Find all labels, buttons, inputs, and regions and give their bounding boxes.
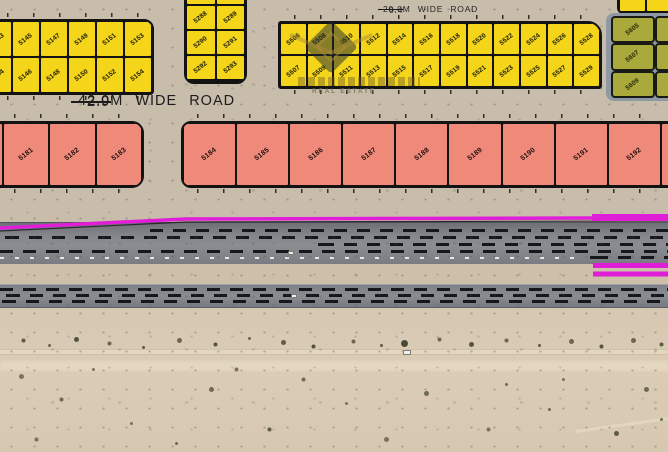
lane-dash-line [590,256,668,259]
plot-cell: 5153 [124,21,152,57]
plot-number: 5526 [552,32,568,47]
plot-number: 5144 [0,68,6,83]
plot-cell: 5524 [520,23,547,55]
plot-number: 5523 [498,64,514,79]
plot-cell: 5185 [236,123,289,186]
plot-number: 5184 [201,147,218,163]
plot-number: 5507 [285,64,301,79]
satellite-plot-map: 514351455147514951515153 514451465148515… [0,0,668,452]
magenta-boundary-thick [592,214,668,221]
plot-number: 5525 [525,64,541,79]
road-median-strip [0,264,668,284]
plot-cell [655,16,668,43]
plot-cell: 5147 [40,21,68,57]
desert-sand-area [0,308,668,452]
plot-row [619,0,668,12]
plot-cell: 5184 [183,123,236,186]
plot-cell: 5519 [440,55,467,87]
plot-number: 5145 [18,32,34,47]
plot-cell: 5607 [611,43,655,70]
plot-number: 5189 [466,147,483,163]
plot-number: 5518 [445,32,461,47]
plot-cell: 5288 [186,5,216,30]
plot-number: 5290 [193,35,209,50]
plot-number: 5187 [360,147,377,163]
plot-block-yellow-left: 514351455147514951515153 514451465148515… [0,19,154,95]
plot-number: 5192 [626,147,643,163]
plot-cell: 5605 [611,16,655,43]
lane-dash-line [0,236,668,239]
plot-cell: 5521 [467,55,494,87]
plot-number: 5185 [254,147,271,163]
plot-number: 5143 [0,32,6,47]
plot-cell: 5512 [360,23,387,55]
plot-number: 5529 [578,64,594,79]
plot-number: 5181 [17,147,34,163]
plot-number: 5149 [74,32,90,47]
plot-cell: 5146 [12,57,40,93]
plot-number: 5521 [472,64,488,79]
dimension-ticks [2,114,142,118]
plot-number: 5191 [573,147,590,163]
lane-dash-line [150,229,668,232]
plot-cell: 5506 [280,23,307,55]
plot-number: 5153 [130,32,146,47]
plot-cell: 5527 [547,55,574,87]
plot-number: 5188 [413,147,430,163]
vehicle [291,294,297,298]
lane-dash-line [0,250,668,253]
plot-cell: 5289 [216,5,246,30]
road-width-label-middle: 2.9 42.0M WIDE ROAD [78,93,235,109]
overlapping-dimension-text: 2.9 [87,94,110,110]
plot-cell: 5528 [573,23,600,55]
plot-cell: 5509 [307,55,334,87]
plot-cell: 5523 [493,55,520,87]
plot-cell: 5187 [342,123,395,186]
plot-cell: 5517 [413,55,440,87]
plot-cell: 5150 [68,57,96,93]
plot-cell: 5152 [96,57,124,93]
plot-cell: 5148 [40,57,68,93]
plot-row: 5506550855105512551455165518552055225524… [280,23,600,55]
plot-number: 5146 [18,68,34,83]
plot-block-green-backdrop: 560556075609 [606,13,668,101]
plot-number: 5152 [102,68,118,83]
plot-cell [619,0,646,12]
plot-cell: 5183 [96,123,143,186]
plot-cell: 5190 [502,123,555,186]
overlapping-dimension-text: 0.4 [389,5,403,15]
plot-cell: 5149 [68,21,96,57]
plot-number: 5183 [110,147,127,163]
plot-number: 5515 [392,64,408,79]
plot-cell: 5516 [413,23,440,55]
plot-row: 514351455147514951515153 [0,21,152,57]
plot-cell: 5191 [555,123,608,186]
plot-cell: 5529 [573,55,600,87]
plot-number: 5509 [312,64,328,79]
plot-block-pink-left: 518151825183 [0,121,144,188]
plot-cell: 5145 [12,21,40,57]
plot-cell: 5520 [467,23,494,55]
plot-cell: 5507 [280,55,307,87]
plot-cell [655,43,668,70]
plot-row: 518451855186518751885189519051915192 [183,123,668,186]
plot-number: 5607 [625,50,641,65]
lane-dash-line [0,294,668,297]
plot-number: 5514 [392,32,408,47]
vehicle [403,350,411,355]
plot-row: 5507550955115513551555175519552155235525… [280,55,600,87]
dimension-ticks [185,189,665,193]
plot-cell: 5291 [216,30,246,55]
plot-block-yellow-stub [617,0,668,14]
plot-number: 5186 [307,147,324,163]
plot-number: 5182 [64,147,81,163]
plot-number: 5506 [285,32,301,47]
plot-number: 5293 [222,60,238,75]
plot-cell: 5143 [0,21,12,57]
plot-cell: 5292 [186,55,216,80]
plot-number: 5527 [552,64,568,79]
plot-cell: 5511 [333,55,360,87]
plot-row: 518151825183 [0,123,142,186]
plot-number: 5151 [102,32,118,47]
dimension-ticks [282,90,598,94]
lane-dash-line [0,300,668,303]
plot-number: 5528 [578,32,594,47]
dimension-ticks [282,15,598,19]
plot-number: 5513 [365,64,381,79]
plot-number: 5292 [193,60,209,75]
plot-cell: 5526 [547,23,574,55]
road-upper-carriageway [0,222,668,264]
plot-cell: 5609 [611,71,655,98]
plot-number: 5609 [625,77,641,92]
plot-number: 5524 [525,32,541,47]
plot-cell: 5514 [387,23,414,55]
dirt-track-road [0,349,668,355]
plot-cell: 5510 [333,23,360,55]
plot-cell: 5522 [493,23,520,55]
plot-cell [655,71,668,98]
road-width-label-top: 0.4 20.0M WIDE ROAD [383,4,478,14]
plot-number: 5605 [625,22,641,37]
plot-number: 5289 [222,10,238,25]
center-dotted-line [0,257,575,259]
plot-number: 5508 [312,32,328,47]
desert-shrubs [0,0,3,3]
plot-cell: 5189 [448,123,501,186]
plot-block-pink-right: 518451855186518751885189519051915192 [181,121,668,188]
plot-number: 5517 [418,64,434,79]
road-lower-carriageway [0,284,668,308]
plot-number: 5147 [46,32,62,47]
plot-number: 5150 [74,68,90,83]
plot-number: 5190 [520,147,537,163]
plot-cell: 5151 [96,21,124,57]
plot-cell: 5525 [520,55,547,87]
dimension-ticks [0,13,155,17]
plot-grid-green: 560556075609 [611,16,668,98]
plot-number: 5148 [46,68,62,83]
plot-cell: 5188 [395,123,448,186]
lane-dash-line [0,288,668,291]
plot-cell: 5513 [360,55,387,87]
sand-light-band [0,361,668,371]
plot-cell: 5186 [289,123,342,186]
plot-number: 5154 [130,68,146,83]
plot-cell [661,123,668,186]
plot-cell: 5515 [387,55,414,87]
plot-cell: 5518 [440,23,467,55]
plot-number: 5511 [339,64,355,79]
plot-number: 5291 [222,35,238,50]
plot-row: 514451465148515051525154 [0,57,152,93]
plot-cell: 5181 [3,123,50,186]
plot-cell: 5290 [186,30,216,55]
plot-number: 5288 [193,10,209,25]
plot-number: 5516 [418,32,434,47]
plot-block-yellow-right: 5506550855105512551455165518552055225524… [278,21,602,89]
dimension-ticks [2,189,142,193]
plot-block-yellow-middle: 528852895290529152925293 [184,0,247,84]
dimension-ticks [185,114,665,118]
plot-cell [646,0,668,12]
plot-number: 5522 [498,32,514,47]
plot-number: 5510 [338,32,354,47]
plot-number: 5519 [445,64,461,79]
plot-cell: 5293 [216,55,246,80]
vehicle [288,251,294,255]
plot-cell: 5508 [307,23,334,55]
plot-cell: 5154 [124,57,152,93]
plot-cell: 5144 [0,57,12,93]
plot-grid: 528852895290529152925293 [186,0,245,82]
lane-dash-line [318,243,668,246]
plot-cell: 5192 [608,123,661,186]
plot-cell: 5182 [49,123,96,186]
plot-number: 5512 [365,32,381,47]
plot-number: 5520 [472,32,488,47]
